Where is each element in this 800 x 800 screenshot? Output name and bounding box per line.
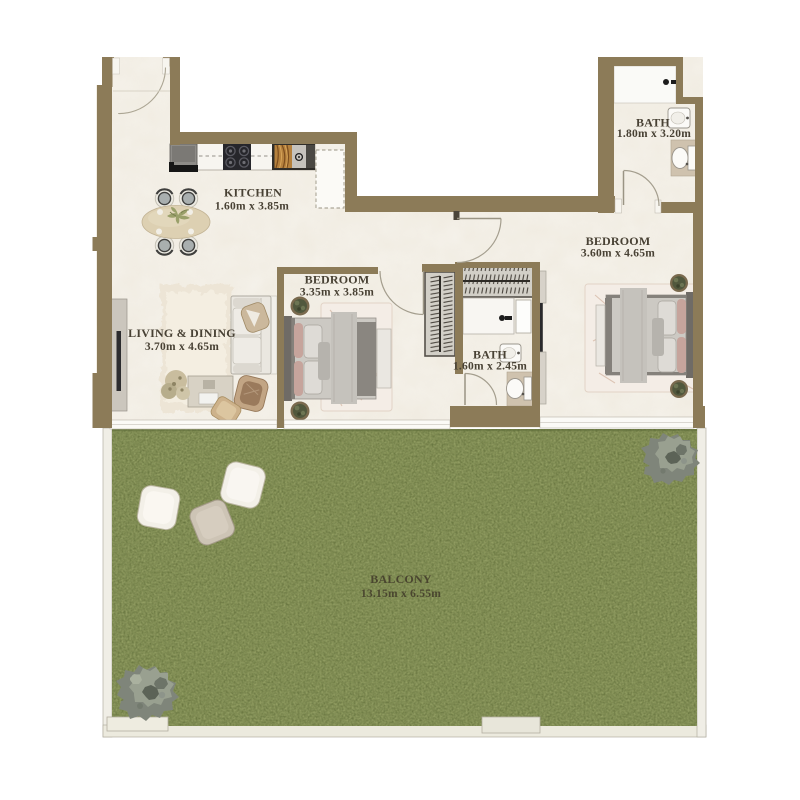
- svg-text:13.15m x 6.55m: 13.15m x 6.55m: [361, 588, 441, 600]
- svg-text:BEDROOM: BEDROOM: [305, 273, 370, 287]
- svg-text:1.60m x 3.85m: 1.60m x 3.85m: [215, 201, 289, 213]
- svg-text:3.35m x 3.85m: 3.35m x 3.85m: [300, 287, 374, 299]
- svg-text:BATH: BATH: [473, 348, 507, 362]
- svg-text:1.60m x 2.45m: 1.60m x 2.45m: [453, 361, 527, 373]
- svg-text:BALCONY: BALCONY: [370, 572, 432, 586]
- svg-text:BEDROOM: BEDROOM: [586, 234, 651, 248]
- svg-text:3.70m x 4.65m: 3.70m x 4.65m: [145, 341, 219, 353]
- svg-text:3.60m x 4.65m: 3.60m x 4.65m: [581, 248, 655, 260]
- svg-text:KITCHEN: KITCHEN: [224, 186, 282, 200]
- svg-text:LIVING & DINING: LIVING & DINING: [128, 326, 236, 340]
- svg-text:1.80m x 3.20m: 1.80m x 3.20m: [617, 128, 691, 140]
